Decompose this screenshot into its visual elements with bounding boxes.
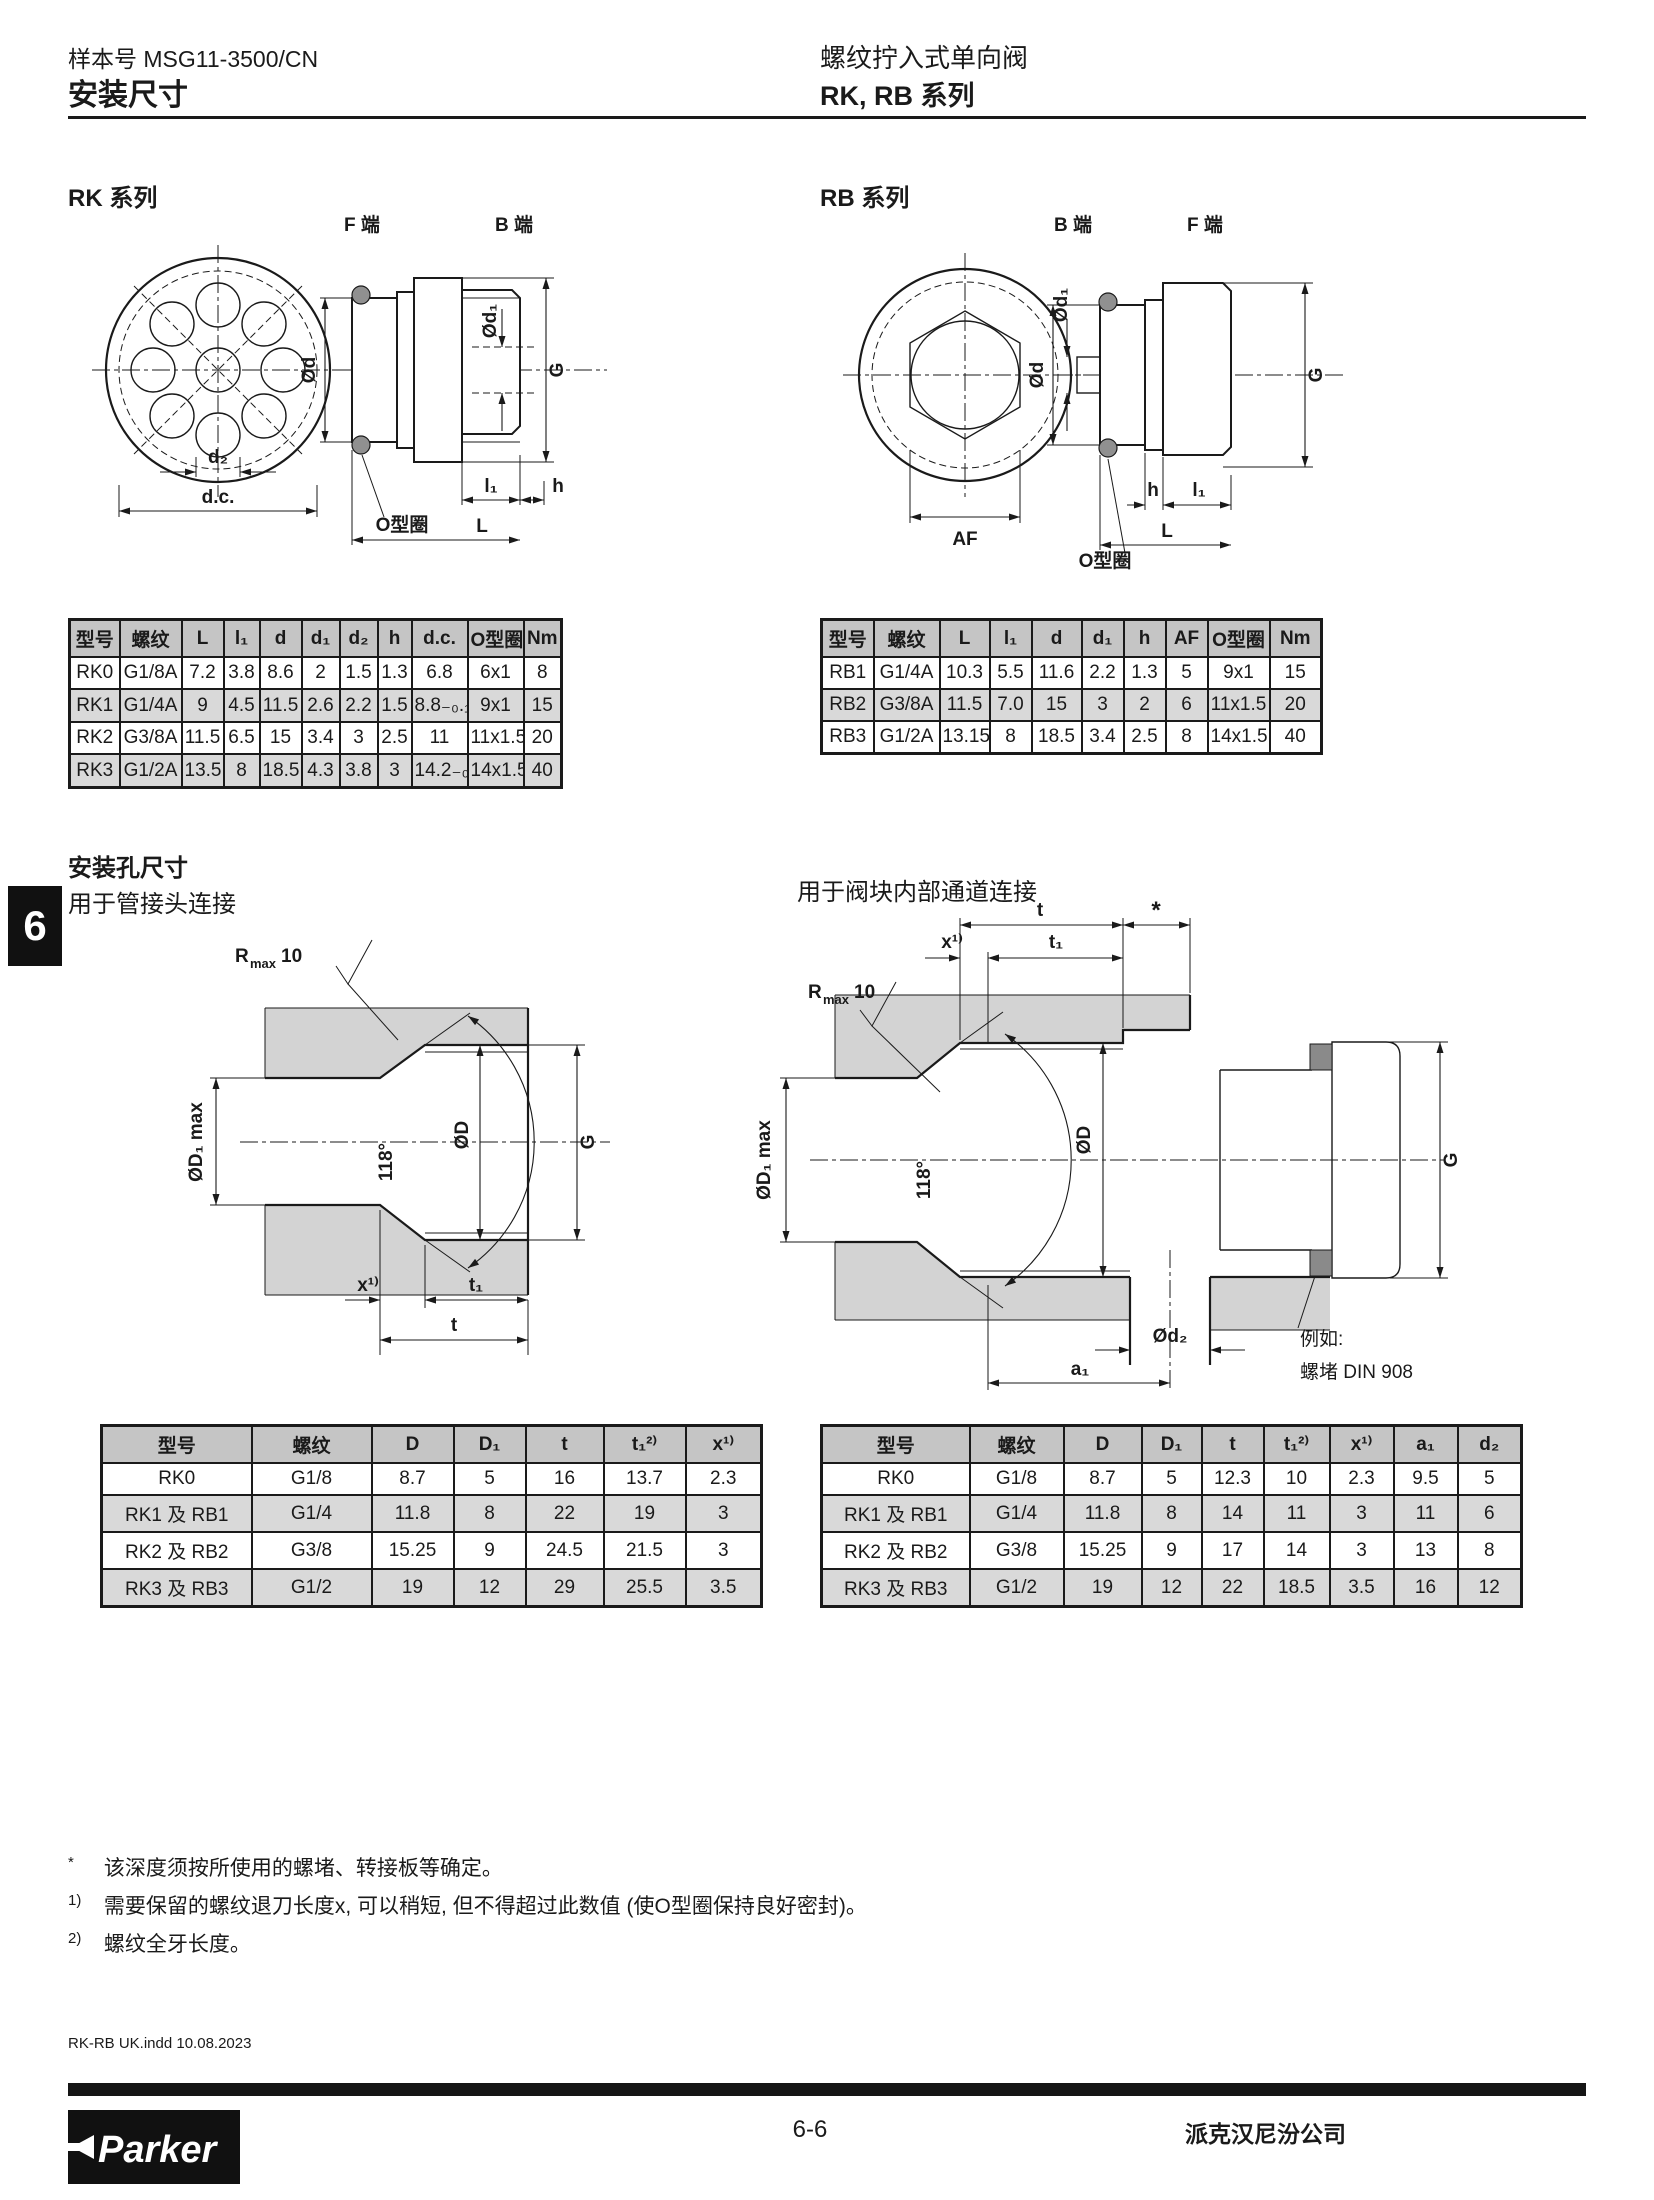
table-cell: 13.15	[940, 721, 990, 754]
column-header: h	[378, 620, 412, 658]
column-header: 型号	[102, 1426, 252, 1464]
table-cell: 3.5	[686, 1569, 762, 1607]
table-cell: 22	[1202, 1569, 1264, 1607]
column-header: O型圈	[468, 620, 524, 658]
column-header: 螺纹	[252, 1426, 372, 1464]
table-cell: G1/8	[252, 1463, 372, 1495]
label-f-end: F 端	[344, 213, 380, 236]
table-cell: 3.4	[302, 722, 340, 754]
table-cell: 8.7	[372, 1463, 454, 1495]
page-number: 6-6	[770, 2116, 850, 2144]
table-cell: 15	[260, 722, 302, 754]
dim-label-h: h	[1147, 480, 1159, 501]
table-cell: 13.5	[182, 754, 224, 788]
table-cell: 8.8₋₀.₁	[412, 689, 468, 722]
dim-label-af: AF	[952, 529, 977, 550]
column-header: 螺纹	[120, 620, 182, 658]
dim-label-t: t	[1037, 900, 1044, 921]
dim-label-dia-d: Ød	[1027, 362, 1048, 388]
label-rmax-sub: max	[823, 992, 850, 1007]
dim-label-g: G	[1441, 1153, 1462, 1168]
example-label-line1: 例如:	[1300, 1328, 1343, 1350]
table-cell: 3	[1330, 1495, 1394, 1532]
table-row: RK3 及 RB3G1/219122218.53.51612	[822, 1569, 1522, 1607]
table-cell: 9x1	[1208, 657, 1270, 689]
o-ring-bottom	[1099, 439, 1117, 457]
table-cell: 8	[524, 657, 562, 689]
column-header: D₁	[1142, 1426, 1202, 1464]
table-cell: 2.2	[340, 689, 378, 722]
table-cell: 5	[1458, 1463, 1522, 1495]
o-ring-bottom	[352, 436, 370, 454]
table-cell: 3.8	[224, 657, 260, 689]
rk-series-diagram: d₂ d.c. F 端 B 端 Ød	[62, 205, 642, 570]
page-title: 安装尺寸	[68, 70, 188, 114]
table-cell: 6	[1458, 1495, 1522, 1532]
table-cell: 8	[1166, 721, 1208, 754]
table-cell: 15.25	[372, 1532, 454, 1569]
table-cell: 6.5	[224, 722, 260, 754]
table-cell: 12	[454, 1569, 526, 1607]
footnote-marker: 1)	[68, 1892, 98, 1909]
mounting-title: 安装孔尺寸	[68, 848, 188, 883]
table-row: RK0G1/8A7.23.88.621.51.36.86x18	[70, 657, 562, 689]
rb-dimension-table: 型号螺纹Ll₁dd₁hAFO型圈NmRB1G1/4A10.35.511.62.2…	[820, 618, 1323, 755]
table-cell: 7.2	[182, 657, 224, 689]
table-cell: G1/4A	[874, 657, 940, 689]
column-header: O型圈	[1208, 620, 1270, 658]
parker-logo-text: Parker	[98, 2129, 219, 2171]
table-cell: 3	[686, 1532, 762, 1569]
dim-label-d1max: ØD₁ max	[754, 1120, 775, 1200]
table-cell: 3	[1330, 1532, 1394, 1569]
column-header: d₁	[302, 620, 340, 658]
rk-dimension-table-wrap: 型号螺纹Ll₁dd₁d₂hd.c.O型圈NmRK0G1/8A7.23.88.62…	[68, 618, 563, 789]
table-cell: 11.6	[1032, 657, 1082, 689]
table-cell: 11	[1394, 1495, 1458, 1532]
table-cell: 14	[1202, 1495, 1264, 1532]
label-rmax-sub: max	[250, 956, 277, 971]
table-cell: RB3	[822, 721, 874, 754]
table-row: RB3G1/2A13.15818.53.42.5814x1.540	[822, 721, 1322, 754]
table-cell: 2.3	[686, 1463, 762, 1495]
table-cell: 8.7	[1064, 1463, 1142, 1495]
column-header: 型号	[70, 620, 120, 658]
catalog-number: 样本号 MSG11-3500/CN	[68, 40, 318, 74]
column-header: l₁	[990, 620, 1032, 658]
table-cell: 2	[1124, 689, 1166, 721]
table-cell: G3/8A	[874, 689, 940, 721]
dim-label-x: x¹⁾	[941, 932, 963, 953]
table-cell: 17	[1202, 1532, 1264, 1569]
table-cell: 18.5	[260, 754, 302, 788]
o-ring-top	[352, 286, 370, 304]
table-cell: 1.5	[340, 657, 378, 689]
table-cell: 1.3	[378, 657, 412, 689]
column-header: 型号	[822, 1426, 970, 1464]
table-cell: G1/4A	[120, 689, 182, 722]
table-cell: 2.2	[1082, 657, 1124, 689]
chapter-tab: 6	[8, 886, 62, 966]
o-ring-label: O型圈	[1079, 549, 1132, 572]
label-b-end: B 端	[495, 213, 533, 236]
table-cell: RB1	[822, 657, 874, 689]
table-cell: RK3	[70, 754, 120, 788]
footnote-marker: *	[68, 1854, 98, 1871]
table-cell: 15	[1270, 657, 1322, 689]
table-cell: 5.5	[990, 657, 1032, 689]
hole-fitting-table: 型号螺纹DD₁tt₁²⁾x¹⁾RK0G1/88.751613.72.3RK1 及…	[100, 1424, 763, 1608]
table-cell: 11.5	[182, 722, 224, 754]
table-cell: G1/2A	[120, 754, 182, 788]
table-cell: 22	[526, 1495, 604, 1532]
table-row: RK2 及 RB2G3/815.25917143138	[822, 1532, 1522, 1569]
label-f-end: F 端	[1187, 213, 1223, 236]
table-cell: RK3 及 RB3	[102, 1569, 252, 1607]
column-header: 型号	[822, 620, 874, 658]
column-header: L	[182, 620, 224, 658]
hole-channel-table-wrap: 型号螺纹DD₁tt₁²⁾x¹⁾a₁d₂RK0G1/88.7512.3102.39…	[820, 1424, 1523, 1608]
table-cell: G3/8	[252, 1532, 372, 1569]
table-cell: 11	[412, 722, 468, 754]
table-cell: 21.5	[604, 1532, 686, 1569]
table-row: RK1 及 RB1G1/411.8814113116	[822, 1495, 1522, 1532]
table-cell: 3.5	[1330, 1569, 1394, 1607]
table-cell: 9.5	[1394, 1463, 1458, 1495]
table-cell: 24.5	[526, 1532, 604, 1569]
table-header-row: 型号螺纹Ll₁dd₁d₂hd.c.O型圈Nm	[70, 620, 562, 658]
rb-series-diagram: AF B 端 F 端 Ød Ød₁ G	[815, 205, 1395, 590]
dim-label-h: h	[552, 476, 564, 497]
table-cell: 4.5	[224, 689, 260, 722]
table-cell: 14x1.5	[1208, 721, 1270, 754]
dim-label-t1: t₁	[469, 1275, 483, 1296]
table-cell: RK1	[70, 689, 120, 722]
table-cell: 5	[1142, 1463, 1202, 1495]
print-info: RK-RB UK.indd 10.08.2023	[68, 2035, 251, 2052]
table-cell: 11.8	[1064, 1495, 1142, 1532]
column-header: x¹⁾	[1330, 1426, 1394, 1464]
dim-label-g: G	[547, 363, 568, 378]
dim-label-dia-d2: Ød₂	[1153, 1326, 1188, 1347]
dim-label-t1: t₁	[1049, 932, 1063, 953]
dim-label-t: t	[451, 1315, 458, 1336]
table-cell: 9	[182, 689, 224, 722]
table-cell: 12	[1458, 1569, 1522, 1607]
document-page: 样本号 MSG11-3500/CN 安装尺寸 螺纹拧入式单向阀 RK, RB 系…	[0, 0, 1654, 2200]
footnote-2: 2) 螺纹全牙长度。	[68, 1928, 1368, 1958]
header-rule	[68, 116, 1586, 119]
label-rmax-val: 10	[281, 946, 302, 967]
column-header: D	[372, 1426, 454, 1464]
table-cell: 5	[454, 1463, 526, 1495]
footnote-marker: 2)	[68, 1930, 98, 1947]
table-cell: 16	[526, 1463, 604, 1495]
label-rmax-r: R	[235, 946, 249, 967]
table-cell: 10.3	[940, 657, 990, 689]
table-cell: RK0	[102, 1463, 252, 1495]
dim-label-d1max: ØD₁ max	[186, 1102, 207, 1182]
table-cell: 3	[1082, 689, 1124, 721]
table-cell: 11x1.5	[1208, 689, 1270, 721]
footnote-star: * 该深度须按所使用的螺堵、转接板等确定。	[68, 1852, 1368, 1882]
table-cell: 8	[1142, 1495, 1202, 1532]
o-ring-top	[1099, 293, 1117, 311]
dim-label-d2: d₂	[208, 447, 228, 468]
parker-logo: Parker	[68, 2110, 240, 2184]
column-header: Nm	[524, 620, 562, 658]
table-cell: 3.4	[1082, 721, 1124, 754]
column-header: a₁	[1394, 1426, 1458, 1464]
table-cell: 19	[604, 1495, 686, 1532]
table-cell: RK3 及 RB3	[822, 1569, 970, 1607]
label-rmax-val: 10	[854, 982, 875, 1003]
column-header: L	[940, 620, 990, 658]
table-cell: G3/8	[970, 1532, 1064, 1569]
table-cell: 5	[1166, 657, 1208, 689]
column-header: 螺纹	[970, 1426, 1064, 1464]
rb-side-view: B 端 F 端 Ød Ød₁ G O型圈	[1027, 213, 1345, 572]
dim-label-x: x¹⁾	[357, 1275, 379, 1296]
dim-label-l: L	[476, 516, 488, 537]
table-row: RK1 及 RB1G1/411.8822193	[102, 1495, 762, 1532]
table-cell: G1/8	[970, 1463, 1064, 1495]
label-rmax-r: R	[808, 982, 822, 1003]
table-cell: RK0	[70, 657, 120, 689]
table-cell: 11.8	[372, 1495, 454, 1532]
table-cell: 6	[1166, 689, 1208, 721]
plug-seal-top	[1310, 1044, 1332, 1070]
column-header: t₁²⁾	[604, 1426, 686, 1464]
table-cell: 1.3	[1124, 657, 1166, 689]
column-header: d₂	[340, 620, 378, 658]
table-cell: 3.8	[340, 754, 378, 788]
column-header: x¹⁾	[686, 1426, 762, 1464]
dim-label-dia-d1: Ød₁	[1051, 288, 1072, 322]
table-cell: 13.7	[604, 1463, 686, 1495]
table-cell: 20	[1270, 689, 1322, 721]
column-header: D	[1064, 1426, 1142, 1464]
column-header: d.c.	[412, 620, 468, 658]
table-cell: 3	[686, 1495, 762, 1532]
table-cell: 18.5	[1264, 1569, 1330, 1607]
dim-label-l: L	[1161, 521, 1173, 542]
column-header: l₁	[224, 620, 260, 658]
dim-label-dia-d1: Ød₁	[480, 304, 501, 338]
table-cell: G1/2A	[874, 721, 940, 754]
table-cell: 15	[1032, 689, 1082, 721]
table-row: RK3 及 RB3G1/219122925.53.5	[102, 1569, 762, 1607]
table-cell: 29	[526, 1569, 604, 1607]
table-cell: 19	[1064, 1569, 1142, 1607]
label-b-end: B 端	[1054, 213, 1092, 236]
table-cell: 8	[1458, 1532, 1522, 1569]
footer-bar	[68, 2083, 1586, 2096]
table-cell: 40	[524, 754, 562, 788]
table-cell: G1/8A	[120, 657, 182, 689]
dim-label-star: *	[1151, 897, 1161, 924]
table-cell: 14	[1264, 1532, 1330, 1569]
table-cell: 2	[302, 657, 340, 689]
dim-label-l1: l₁	[484, 476, 497, 497]
column-header: h	[1124, 620, 1166, 658]
mounting-hole-diagram-fitting: R max 10 118° ØD₁ max ØD G	[140, 900, 660, 1400]
table-cell: RB2	[822, 689, 874, 721]
column-header: AF	[1166, 620, 1208, 658]
rb-dimension-table-wrap: 型号螺纹Ll₁dd₁hAFO型圈NmRB1G1/4A10.35.511.62.2…	[820, 618, 1323, 755]
table-cell: 8	[454, 1495, 526, 1532]
table-cell: G1/4	[252, 1495, 372, 1532]
hole-fitting-table-wrap: 型号螺纹DD₁tt₁²⁾x¹⁾RK0G1/88.751613.72.3RK1 及…	[100, 1424, 763, 1608]
table-cell: 7.0	[990, 689, 1032, 721]
table-cell: 4.3	[302, 754, 340, 788]
column-header: t	[1202, 1426, 1264, 1464]
table-cell: 15	[524, 689, 562, 722]
table-row: RK1G1/4A94.511.52.62.21.58.8₋₀.₁9x115	[70, 689, 562, 722]
table-row: RK0G1/88.7512.3102.39.55	[822, 1463, 1522, 1495]
table-cell: 11x1.5	[468, 722, 524, 754]
table-row: RK2G3/8A11.56.5153.432.51111x1.520	[70, 722, 562, 754]
table-cell: 9	[1142, 1532, 1202, 1569]
table-cell: 3	[340, 722, 378, 754]
rk-side-view: F 端 B 端 Ød Ød₁ G	[299, 213, 607, 545]
company-name: 派克汉尼汾公司	[1185, 2115, 1346, 2149]
example-label-line2: 螺堵 DIN 908	[1300, 1361, 1413, 1383]
table-cell: 19	[372, 1569, 454, 1607]
table-cell: 2.3	[1330, 1463, 1394, 1495]
footnote-text: 螺纹全牙长度。	[104, 1933, 251, 1956]
footnote-1: 1) 需要保留的螺纹退刀长度x, 可以稍短, 但不得超过此数值 (使O型圈保持良…	[68, 1890, 1368, 1920]
dim-label-g: G	[1306, 368, 1327, 383]
table-row: RB2G3/8A11.57.01532611x1.520	[822, 689, 1322, 721]
column-header: d	[1032, 620, 1082, 658]
dim-label-angle: 118°	[914, 1161, 935, 1199]
table-header-row: 型号螺纹DD₁tt₁²⁾x¹⁾	[102, 1426, 762, 1464]
table-cell: RK2 及 RB2	[102, 1532, 252, 1569]
table-cell: RK0	[822, 1463, 970, 1495]
table-cell: 8	[224, 754, 260, 788]
table-cell: 1.5	[378, 689, 412, 722]
table-row: RK3G1/2A13.5818.54.33.8314.2₋₀.₁14x1.540	[70, 754, 562, 788]
o-ring-label: O型圈	[376, 513, 429, 536]
table-header-row: 型号螺纹Ll₁dd₁hAFO型圈Nm	[822, 620, 1322, 658]
dim-label-dia-d: ØD	[452, 1121, 473, 1150]
table-cell: 16	[1394, 1569, 1458, 1607]
rk-dimension-table: 型号螺纹Ll₁dd₁d₂hd.c.O型圈NmRK0G1/8A7.23.88.62…	[68, 618, 563, 789]
plug-seal-bottom	[1310, 1250, 1332, 1276]
table-cell: 11.5	[940, 689, 990, 721]
table-cell: 14.2₋₀.₁	[412, 754, 468, 788]
table-cell: 6.8	[412, 657, 468, 689]
dim-label-angle: 118°	[376, 1143, 397, 1181]
column-header: D₁	[454, 1426, 526, 1464]
column-header: d	[260, 620, 302, 658]
table-cell: 12.3	[1202, 1463, 1264, 1495]
dim-label-dc: d.c.	[202, 487, 235, 508]
hole-section	[810, 995, 1445, 1392]
table-cell: G1/2	[252, 1569, 372, 1607]
column-header: t	[526, 1426, 604, 1464]
table-cell: 9	[454, 1532, 526, 1569]
table-cell: 3	[378, 754, 412, 788]
column-header: t₁²⁾	[1264, 1426, 1330, 1464]
dim-label-a1: a₁	[1071, 1359, 1090, 1380]
footnote-text: 需要保留的螺纹退刀长度x, 可以稍短, 但不得超过此数值 (使O型圈保持良好密封…	[104, 1895, 867, 1918]
table-cell: 14x1.5	[468, 754, 524, 788]
column-header: 螺纹	[874, 620, 940, 658]
table-cell: 6x1	[468, 657, 524, 689]
dim-label-dia-d: ØD	[1074, 1126, 1095, 1155]
table-cell: 8	[990, 721, 1032, 754]
column-header: d₁	[1082, 620, 1124, 658]
table-cell: 20	[524, 722, 562, 754]
series-title: RK, RB 系列	[820, 74, 975, 113]
table-row: RK0G1/88.751613.72.3	[102, 1463, 762, 1495]
table-cell: RK2 及 RB2	[822, 1532, 970, 1569]
column-header: Nm	[1270, 620, 1322, 658]
table-cell: RK1 及 RB1	[102, 1495, 252, 1532]
table-cell: 25.5	[604, 1569, 686, 1607]
footnote-text: 该深度须按所使用的螺堵、转接板等确定。	[104, 1857, 503, 1880]
table-cell: 2.6	[302, 689, 340, 722]
table-cell: 2.5	[1124, 721, 1166, 754]
mounting-hole-diagram-channel: t * x¹⁾ t₁ R max 10 118° ØD₁ max ØD	[700, 830, 1470, 1410]
table-cell: 18.5	[1032, 721, 1082, 754]
table-row: RB1G1/4A10.35.511.62.21.359x115	[822, 657, 1322, 689]
table-cell: 13	[1394, 1532, 1458, 1569]
table-cell: 40	[1270, 721, 1322, 754]
table-cell: G1/4	[970, 1495, 1064, 1532]
table-cell: 10	[1264, 1463, 1330, 1495]
table-cell: 8.6	[260, 657, 302, 689]
product-title: 螺纹拧入式单向阀	[820, 38, 1028, 75]
table-cell: 15.25	[1064, 1532, 1142, 1569]
table-cell: 2.5	[378, 722, 412, 754]
dim-label-l1: l₁	[1192, 480, 1205, 501]
dim-label-g: G	[578, 1135, 599, 1150]
table-cell: 11.5	[260, 689, 302, 722]
table-header-row: 型号螺纹DD₁tt₁²⁾x¹⁾a₁d₂	[822, 1426, 1522, 1464]
dim-label-dia-d: Ød	[299, 357, 320, 383]
table-cell: RK2	[70, 722, 120, 754]
table-cell: RK1 及 RB1	[822, 1495, 970, 1532]
table-cell: 9x1	[468, 689, 524, 722]
table-cell: 12	[1142, 1569, 1202, 1607]
hole-channel-table: 型号螺纹DD₁tt₁²⁾x¹⁾a₁d₂RK0G1/88.7512.3102.39…	[820, 1424, 1523, 1608]
table-cell: G1/2	[970, 1569, 1064, 1607]
table-row: RK2 及 RB2G3/815.25924.521.53	[102, 1532, 762, 1569]
column-header: d₂	[1458, 1426, 1522, 1464]
table-cell: 11	[1264, 1495, 1330, 1532]
table-cell: G3/8A	[120, 722, 182, 754]
